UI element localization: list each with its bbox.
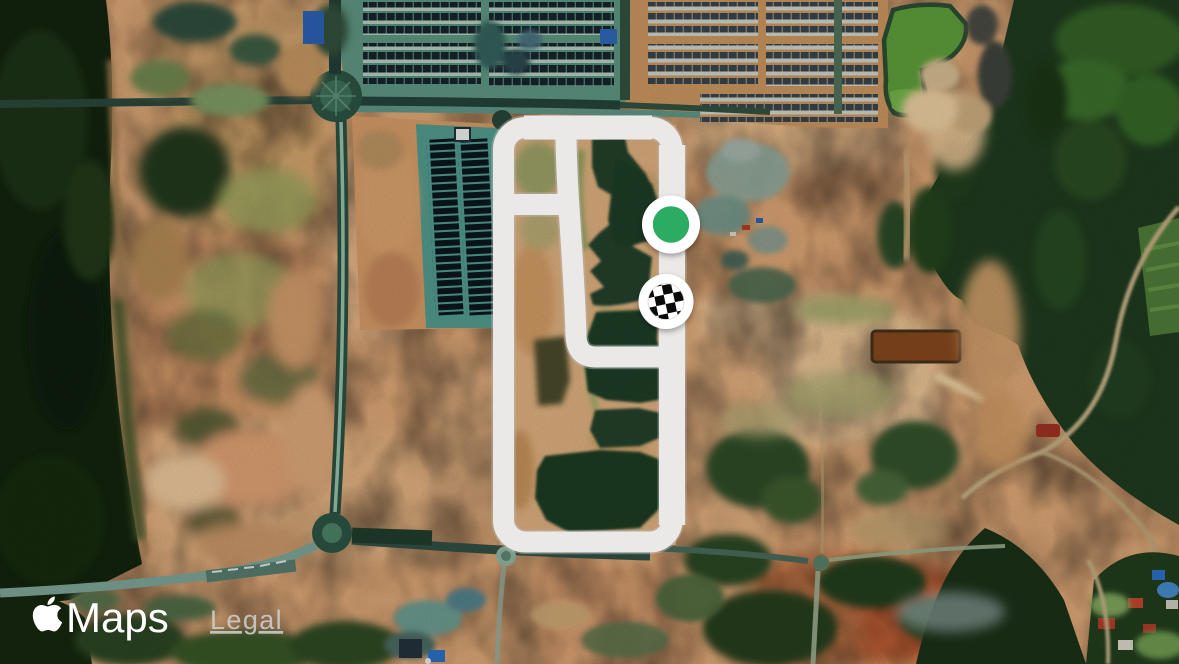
svg-text:Maps: Maps: [66, 594, 169, 641]
svg-text:Legal: Legal: [210, 605, 283, 635]
